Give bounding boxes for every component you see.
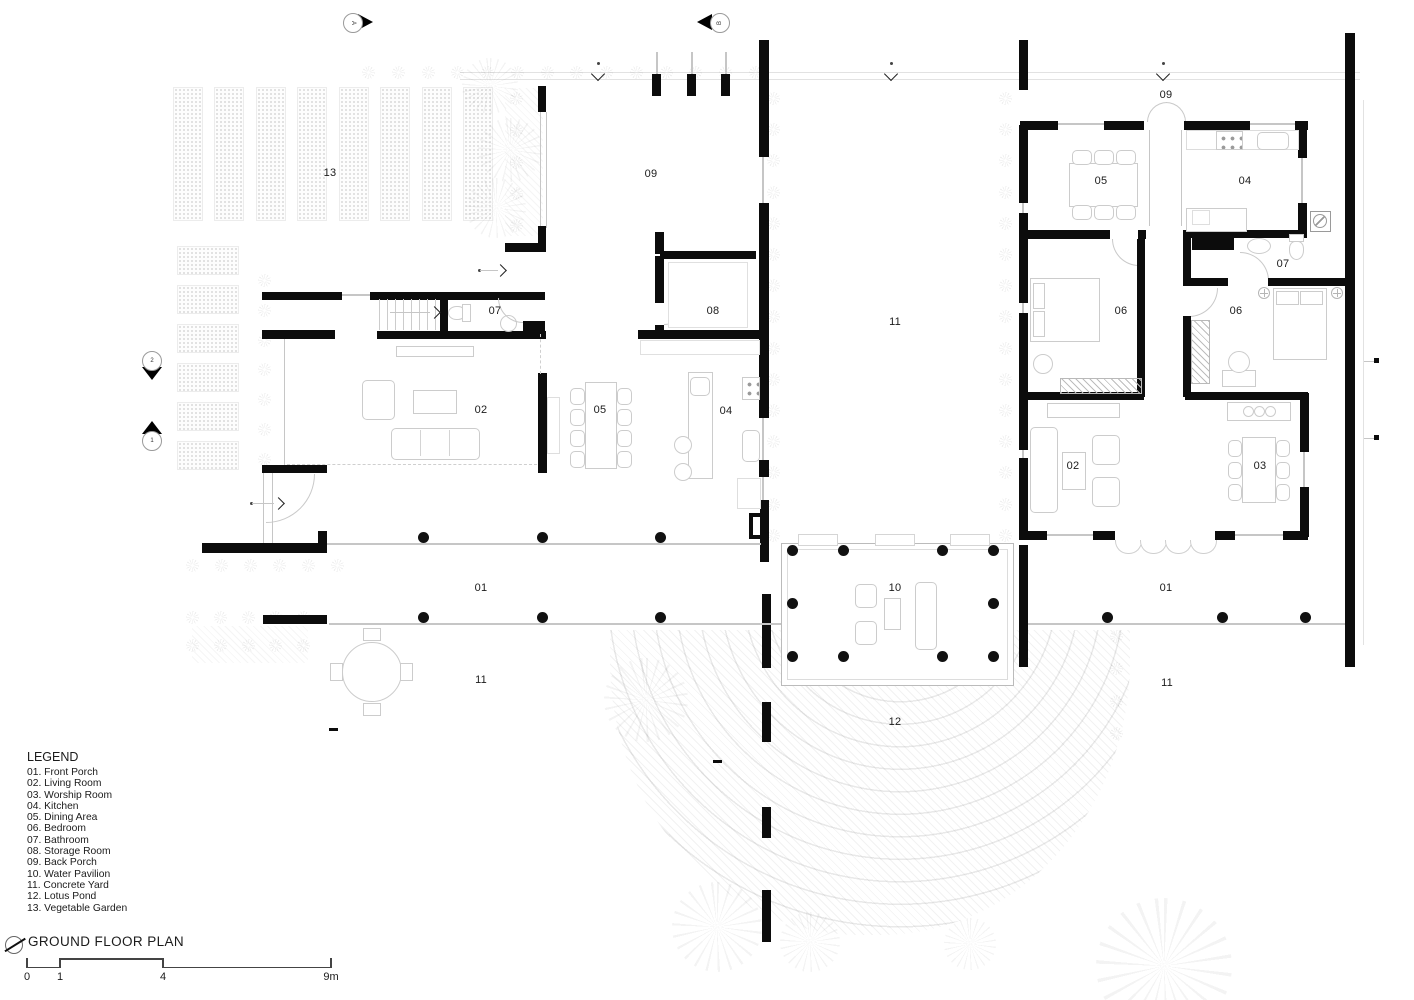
shrub-icon	[999, 154, 1012, 167]
column-dot	[655, 532, 666, 543]
chair	[1033, 354, 1053, 374]
scalebar-segment	[162, 967, 331, 969]
wall	[1215, 531, 1235, 540]
wall	[1183, 238, 1191, 283]
gate-mark	[1162, 62, 1165, 65]
armchair	[1092, 477, 1120, 507]
wall	[759, 336, 769, 418]
room-label-porch-right: 01	[1160, 582, 1173, 594]
ceiling-symbol	[1258, 287, 1270, 299]
wall	[1019, 40, 1028, 90]
chair	[617, 451, 632, 468]
shrub-icon	[999, 342, 1012, 355]
window	[1303, 452, 1305, 487]
room-label-kitchen-left: 04	[720, 405, 733, 417]
porch-edge	[1028, 623, 1345, 625]
wall	[1019, 125, 1028, 203]
offering	[1265, 406, 1276, 417]
room-label-back-porch-right: 09	[1160, 89, 1173, 101]
column-dot	[988, 651, 999, 662]
shrub-icon	[422, 66, 435, 79]
shrub-icon	[331, 559, 344, 572]
chair	[570, 409, 585, 426]
porch-edge	[540, 112, 541, 228]
ref-line	[252, 503, 274, 504]
wall	[538, 86, 546, 112]
sofa-seam	[449, 430, 450, 456]
shrub-icon	[570, 66, 583, 79]
room-label-living-right: 02	[1067, 460, 1080, 472]
wall	[660, 251, 756, 259]
floor-plan-sheet: A B 2 1	[0, 0, 1414, 1000]
tick-dot	[1374, 435, 1379, 440]
pillow	[1300, 291, 1323, 305]
folding-door	[1140, 540, 1167, 554]
door-arc	[266, 474, 315, 523]
shrub-icon	[541, 66, 554, 79]
scalebar-label-0: 0	[24, 971, 30, 983]
shrub-icon	[767, 186, 780, 199]
sofa-seam	[420, 430, 421, 456]
legend-item: 13. Vegetable Garden	[27, 903, 127, 914]
chair	[617, 409, 632, 426]
shrub-icon	[660, 66, 673, 79]
tv-console	[396, 346, 474, 357]
sink	[1247, 238, 1271, 254]
shrub-row	[997, 92, 1013, 542]
sofa	[391, 428, 480, 460]
shrub-icon	[999, 248, 1012, 261]
door-arc	[1189, 288, 1218, 317]
door-arc	[1112, 239, 1139, 266]
scalebar-label-4: 4	[160, 971, 166, 983]
room-label-yard-left: 11	[475, 674, 487, 686]
shrub-icon	[999, 123, 1012, 136]
legend-item: 10. Water Pavilion	[27, 869, 127, 880]
room-label-bath-left: 07	[489, 305, 502, 317]
shrub-icon	[600, 66, 613, 79]
chair	[400, 663, 413, 681]
scalebar-segment	[26, 967, 60, 969]
window	[342, 294, 370, 296]
wall	[1185, 392, 1308, 400]
legend-item: 11. Concrete Yard	[27, 880, 127, 891]
wall	[447, 331, 546, 339]
shrub-icon	[999, 529, 1012, 542]
column	[652, 74, 661, 96]
arrow-icon	[494, 264, 507, 277]
chair	[363, 628, 381, 641]
shrub-icon	[767, 435, 780, 448]
wall	[762, 807, 771, 838]
step	[950, 534, 990, 546]
shrub-icon	[999, 310, 1012, 323]
shrub-icon	[244, 559, 257, 572]
shrub-row	[362, 64, 762, 80]
dining-table	[585, 382, 617, 469]
legend-item: 12. Lotus Pond	[27, 891, 127, 902]
shrub-icon	[186, 559, 199, 572]
tree	[462, 58, 518, 114]
room-label-storage: 08	[707, 305, 720, 317]
column-dot	[1102, 612, 1113, 623]
wall	[1093, 531, 1115, 540]
wall	[1183, 316, 1191, 397]
room-label-yard-center: 11	[889, 316, 901, 328]
chair	[363, 703, 381, 716]
room-label-porch-left: 01	[475, 582, 488, 594]
folding-door	[1115, 540, 1142, 554]
pillow	[1033, 311, 1045, 337]
pavilion-table	[884, 598, 901, 630]
wall	[638, 330, 769, 339]
chair	[1228, 484, 1242, 501]
sofa	[1030, 427, 1058, 513]
legend-list: 01. Front Porch02. Living Room03. Worshi…	[27, 767, 127, 914]
shrub-icon	[392, 66, 405, 79]
chair	[570, 388, 585, 405]
shrub-icon	[215, 559, 228, 572]
legend-item: 06. Bedroom	[27, 823, 127, 834]
shrub-icon	[999, 279, 1012, 292]
stair-line	[390, 312, 430, 313]
legend-item: 05. Dining Area	[27, 812, 127, 823]
tree	[604, 658, 688, 742]
column-dot	[537, 612, 548, 623]
room-label-worship: 03	[1254, 460, 1267, 472]
door-arc	[1147, 102, 1167, 122]
shrub-icon	[258, 423, 271, 436]
tree	[478, 118, 542, 182]
section-marker-2: 2	[142, 351, 162, 371]
room-label-garden: 13	[324, 167, 337, 179]
column	[721, 74, 730, 96]
window	[762, 418, 764, 460]
wall	[1138, 230, 1146, 239]
wall	[759, 203, 769, 330]
column-dot	[787, 598, 798, 609]
column-dot	[838, 651, 849, 662]
chair	[1072, 205, 1092, 220]
chair	[570, 430, 585, 447]
tree	[466, 178, 526, 238]
overhang-dash	[540, 334, 541, 374]
wall	[1183, 278, 1228, 286]
column-dot	[655, 612, 666, 623]
offering	[1243, 406, 1254, 417]
column-dot	[1300, 612, 1311, 623]
garden-plot	[177, 285, 239, 314]
wall	[1268, 278, 1347, 286]
wall	[1283, 531, 1308, 540]
daybed	[915, 582, 937, 650]
wall	[1019, 213, 1028, 303]
wall	[262, 330, 335, 339]
gate-mark	[890, 62, 893, 65]
wall	[377, 331, 447, 339]
storage-shelf	[668, 262, 748, 328]
path-hatch	[192, 626, 308, 663]
shrub-icon	[999, 373, 1012, 386]
shrub-icon	[242, 611, 255, 624]
wall	[1019, 313, 1028, 396]
room-label-back-porch-left: 09	[645, 168, 658, 180]
shrub-icon	[302, 559, 315, 572]
legend-item: 04. Kitchen	[27, 801, 127, 812]
section-marker-a: A	[343, 13, 363, 33]
overhang-dash	[287, 464, 537, 465]
corridor-line	[1149, 130, 1150, 226]
shrub-icon	[186, 611, 199, 624]
toilet-tank	[462, 304, 471, 322]
wall	[759, 460, 769, 477]
shrub-row	[256, 274, 272, 466]
wall	[655, 256, 664, 303]
chair	[1228, 462, 1242, 479]
survey-dash	[329, 728, 338, 731]
column-dot	[937, 545, 948, 556]
armchair	[362, 380, 395, 420]
wall	[1104, 121, 1144, 130]
wall	[202, 543, 327, 553]
garden-plot	[380, 87, 410, 221]
wall	[1295, 121, 1308, 130]
wall	[762, 702, 771, 742]
door-arc	[1240, 252, 1269, 281]
window	[762, 157, 764, 203]
tree	[672, 882, 762, 972]
kitchen-sink	[1257, 132, 1289, 150]
column-dot	[988, 598, 999, 609]
tree	[1096, 898, 1232, 1000]
chair	[617, 430, 632, 447]
legend-item: 03. Worship Room	[27, 790, 127, 801]
window	[1250, 123, 1297, 125]
cabinet	[737, 478, 761, 509]
column-dot	[937, 651, 948, 662]
garden-plot	[177, 246, 239, 275]
garden-plots	[173, 88, 493, 220]
shrub-row	[186, 557, 344, 573]
column-dot	[1217, 612, 1228, 623]
garden-plot	[256, 87, 286, 221]
shrub-icon	[258, 393, 271, 406]
wall	[1019, 458, 1028, 540]
chair	[330, 663, 343, 681]
column-dot	[988, 545, 999, 556]
wall	[1027, 531, 1047, 540]
shrub-icon	[258, 274, 271, 287]
window	[1047, 534, 1093, 536]
chair	[1116, 205, 1136, 220]
section-marker-b: B	[710, 13, 730, 33]
boundary-wall	[1345, 33, 1355, 667]
wardrobe	[1060, 378, 1142, 394]
stove	[742, 377, 760, 400]
appliance	[1192, 210, 1210, 225]
window	[762, 477, 764, 500]
room-label-yard-right: 11	[1161, 677, 1173, 689]
chair	[1072, 150, 1092, 165]
chair	[617, 388, 632, 405]
building-edge	[327, 543, 761, 545]
room-label-pond: 12	[889, 716, 902, 728]
wall	[263, 615, 327, 624]
shrub-icon	[999, 186, 1012, 199]
island-sink	[690, 377, 710, 396]
section-marker-1: 1	[142, 431, 162, 451]
room-label-bedroom-a: 06	[1115, 305, 1128, 317]
legend-item: 09. Back Porch	[27, 857, 127, 868]
wall-line	[284, 339, 285, 465]
column	[656, 52, 658, 76]
chair	[1228, 440, 1242, 457]
garden-plot	[177, 441, 239, 470]
shrub-icon	[362, 66, 375, 79]
coffee-table	[413, 390, 457, 414]
chair	[1276, 484, 1290, 501]
room-label-pavilion: 10	[889, 582, 902, 594]
wall	[1019, 396, 1028, 450]
window	[1022, 203, 1024, 213]
chair	[1228, 351, 1250, 373]
wall	[1184, 121, 1250, 130]
shrub-icon	[258, 304, 271, 317]
toilet	[1289, 241, 1304, 260]
chair	[1116, 150, 1136, 165]
column-dot	[787, 651, 798, 662]
porch-edge	[546, 112, 547, 228]
chair	[1276, 440, 1290, 457]
wall	[1298, 203, 1307, 232]
wall	[759, 40, 769, 157]
round-table	[342, 642, 402, 702]
tick-dot	[1374, 358, 1379, 363]
cabinet	[547, 397, 560, 454]
chair	[570, 451, 585, 468]
wall	[1022, 230, 1110, 239]
pillow	[1276, 291, 1299, 305]
door-arc	[1166, 102, 1186, 122]
shrub-icon	[999, 404, 1012, 417]
tree	[780, 912, 840, 972]
garden-plot	[422, 87, 452, 221]
wall	[262, 465, 327, 473]
column-dot	[418, 612, 429, 623]
column-dot	[787, 545, 798, 556]
wall	[762, 594, 771, 668]
legend-item: 07. Bathroom	[27, 835, 127, 846]
room-label-kitchen-right: 04	[1239, 175, 1252, 187]
shrub-icon	[999, 498, 1012, 511]
kitchen-sink	[742, 430, 760, 462]
wall	[1300, 393, 1309, 452]
wall	[1019, 545, 1028, 667]
porch-edge	[329, 623, 781, 625]
chair	[1094, 205, 1114, 220]
counter-block	[1192, 236, 1234, 250]
corridor-line	[1181, 130, 1182, 226]
legend-item: 02. Living Room	[27, 778, 127, 789]
ceiling-symbol	[1331, 287, 1343, 299]
door-frame-inner	[753, 517, 760, 535]
column-dot	[418, 532, 429, 543]
legend-item: 01. Front Porch	[27, 767, 127, 778]
shrub-icon	[273, 559, 286, 572]
column	[725, 52, 727, 76]
scalebar-label-1: 1	[57, 971, 63, 983]
armchair	[1092, 435, 1120, 465]
shrub-icon	[999, 92, 1012, 105]
chair	[1094, 150, 1114, 165]
stool	[674, 463, 692, 481]
chair	[1276, 462, 1290, 479]
garden-plot	[177, 324, 239, 353]
column-dot	[838, 545, 849, 556]
window	[1058, 123, 1104, 125]
stool	[674, 436, 692, 454]
window	[1235, 534, 1283, 536]
neighbor-line	[1363, 100, 1364, 645]
scalebar-segment	[59, 958, 163, 960]
garden-plots	[178, 246, 238, 470]
pillow	[1033, 283, 1045, 309]
wardrobe	[1191, 320, 1210, 384]
stove	[1216, 131, 1243, 150]
pavilion-seat	[855, 621, 877, 645]
folding-door	[1165, 540, 1192, 554]
garden-plot	[177, 363, 239, 392]
window	[1022, 450, 1024, 458]
wall	[1137, 239, 1145, 397]
legend-item: 08. Storage Room	[27, 846, 127, 857]
wall	[1298, 130, 1307, 158]
garden-plot	[214, 87, 244, 221]
step	[798, 534, 838, 546]
room-label-living-left: 02	[475, 404, 488, 416]
wall	[762, 890, 771, 942]
wall	[262, 292, 342, 300]
room-label-bath-right: 07	[1277, 258, 1290, 270]
garden-plot	[173, 87, 203, 221]
wall	[505, 243, 546, 252]
legend: LEGEND 01. Front Porch02. Living Room03.…	[27, 750, 127, 914]
offering	[1254, 406, 1265, 417]
kitchen-counter	[640, 340, 760, 355]
shrub-icon	[999, 466, 1012, 479]
window	[1301, 158, 1303, 203]
tv-console	[1047, 403, 1120, 418]
column	[687, 74, 696, 96]
wall	[1300, 487, 1309, 537]
garden-plot	[177, 402, 239, 431]
shrub-icon	[999, 435, 1012, 448]
shrub-icon	[258, 363, 271, 376]
room-label-dining-right: 05	[1095, 175, 1108, 187]
shrub-icon	[999, 217, 1012, 230]
pavilion-seat	[855, 584, 877, 608]
walk-line	[272, 473, 273, 543]
window	[1022, 303, 1024, 313]
column-dot	[537, 532, 548, 543]
folding-door	[1190, 540, 1217, 554]
wall	[538, 373, 547, 473]
scalebar-label-9m: 9m	[323, 971, 338, 983]
walk-line	[263, 473, 264, 543]
legend-title: LEGEND	[27, 750, 127, 764]
drawing-title: GROUND FLOOR PLAN	[28, 934, 184, 949]
shrub-icon	[630, 66, 643, 79]
